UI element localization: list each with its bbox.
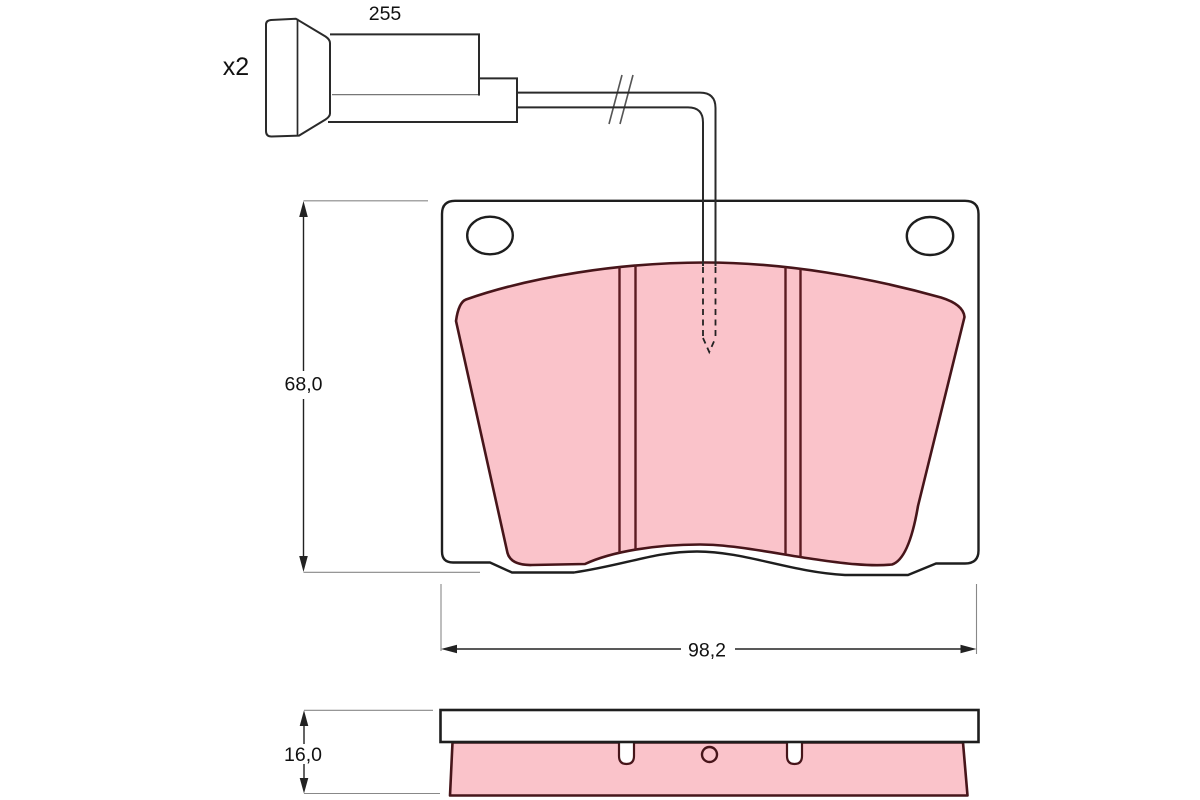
svg-text:16,0: 16,0 — [284, 744, 322, 766]
svg-text:x2: x2 — [223, 53, 249, 81]
svg-text:98,2: 98,2 — [688, 640, 726, 662]
svg-text:68,0: 68,0 — [285, 374, 323, 396]
svg-text:255: 255 — [369, 3, 402, 25]
